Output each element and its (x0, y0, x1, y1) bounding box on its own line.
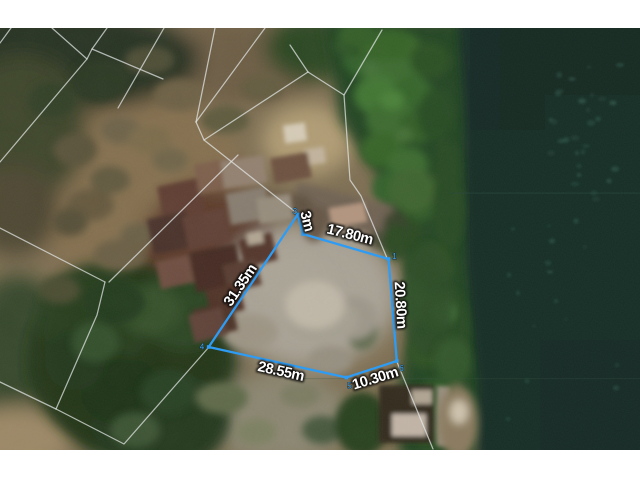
svg-text:4: 4 (200, 343, 205, 352)
svg-text:6: 6 (399, 364, 404, 373)
svg-text:1: 1 (392, 252, 397, 261)
svg-text:20.80m: 20.80m (391, 281, 410, 329)
